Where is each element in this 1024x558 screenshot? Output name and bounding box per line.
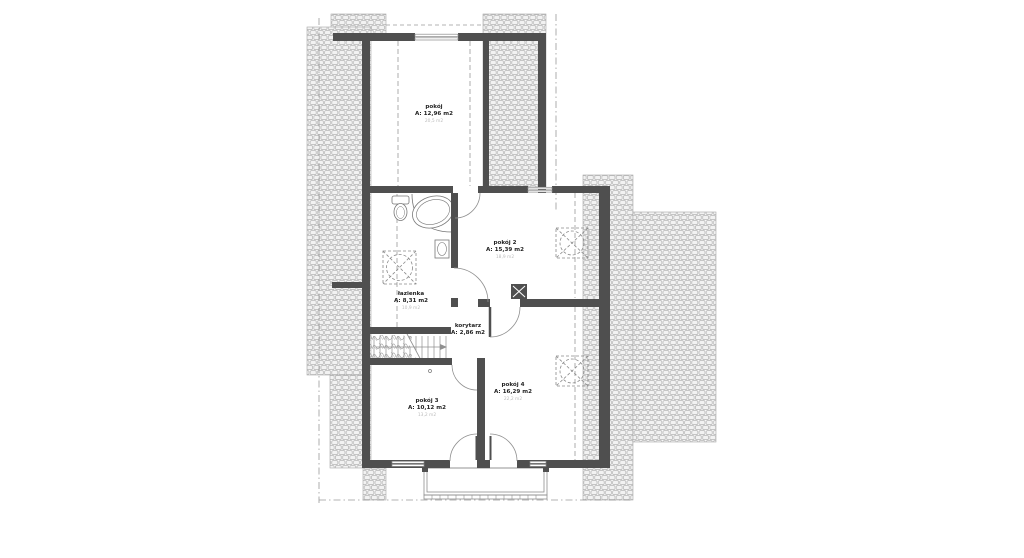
- room-area-floor: 13,2 m2: [418, 412, 436, 418]
- window-top: [415, 34, 458, 40]
- sink-icon: [435, 240, 449, 258]
- door-swing: [452, 365, 477, 390]
- roof-hatch-annex: [633, 212, 716, 442]
- room-area: A: 2,86 m2: [451, 330, 485, 336]
- wall-room2-bottom-right: [520, 299, 610, 307]
- room-name: pokój 4: [501, 381, 524, 388]
- door-swing: [490, 434, 517, 461]
- wall-mid-3: [552, 186, 610, 193]
- floor-plan-canvas: pokój A: 12,96 m2 20,5 m2 pokój 2 A: 15,…: [0, 0, 1024, 558]
- room-label-pokoj-4: pokój 4 A: 16,29 m2 22,2 m2: [494, 381, 532, 402]
- room-name: korytarz: [455, 323, 481, 329]
- wall-bath-bottom: [362, 327, 451, 334]
- wall-bottom-post: [477, 460, 490, 468]
- room-area-floor: 22,2 m2: [504, 396, 522, 402]
- room-label-pokoj-2: pokój 2 A: 15,39 m2 18,9 m2: [486, 239, 524, 260]
- wall-top-right: [458, 33, 546, 41]
- room-area: A: 8,31 m2: [394, 298, 428, 304]
- room-name: pokój 3: [415, 397, 438, 404]
- door-swing: [454, 268, 488, 302]
- room-name: pokój 2: [493, 239, 516, 246]
- roof-hatch-bottom-left: [363, 468, 386, 500]
- wall-right: [599, 193, 610, 460]
- wall-eaves-stub: [332, 282, 362, 288]
- bathtub-icon: [408, 191, 458, 233]
- wall-top-left: [333, 33, 415, 41]
- room-label-korytarz: korytarz A: 2,86 m2: [451, 323, 485, 336]
- room-label-lazienka: łazienka A: 8,31 m2 10,9 m2: [394, 291, 428, 311]
- room-area: A: 15,39 m2: [486, 247, 524, 253]
- wall-mid-2: [478, 186, 528, 193]
- roof-hatch-left-band: [307, 27, 371, 375]
- toilet-icon: [392, 196, 409, 221]
- stairs-icon: [364, 332, 447, 362]
- wall-stairs-bottom: [362, 358, 452, 365]
- room-area-floor: 20,5 m2: [425, 118, 443, 124]
- room-area: A: 10,12 m2: [408, 405, 446, 411]
- room-name: pokój: [425, 103, 442, 110]
- marker-dot: [429, 370, 432, 373]
- room-label-pokoj-3: pokój 3 A: 10,12 m2 13,2 m2: [408, 397, 446, 418]
- door-swing: [455, 193, 480, 218]
- wall-bath-divider-foot: [451, 298, 458, 307]
- room-label-pokoj-1: pokój A: 12,96 m2 20,5 m2: [415, 103, 453, 124]
- room-area: A: 16,29 m2: [494, 389, 532, 395]
- door-swing: [450, 434, 477, 461]
- room-area: A: 12,96 m2: [415, 111, 453, 117]
- wall-knee-room1: [483, 38, 489, 187]
- wall-right-upper: [538, 33, 546, 193]
- wall-mid-1: [362, 186, 453, 193]
- door-swing: [490, 307, 520, 337]
- room-area-floor: 18,9 m2: [496, 254, 514, 260]
- floor-plan-drawing: pokój A: 12,96 m2 20,5 m2 pokój 2 A: 15,…: [0, 0, 1024, 558]
- walls: [332, 33, 610, 468]
- room-area-floor: 10,9 m2: [402, 305, 420, 311]
- wall-room34-divider: [477, 358, 485, 462]
- wall-left: [362, 33, 370, 468]
- bathroom-fixtures: [392, 191, 458, 258]
- roof-window-icon: [383, 251, 416, 284]
- room-name: łazienka: [397, 291, 425, 297]
- balcony: [422, 466, 549, 499]
